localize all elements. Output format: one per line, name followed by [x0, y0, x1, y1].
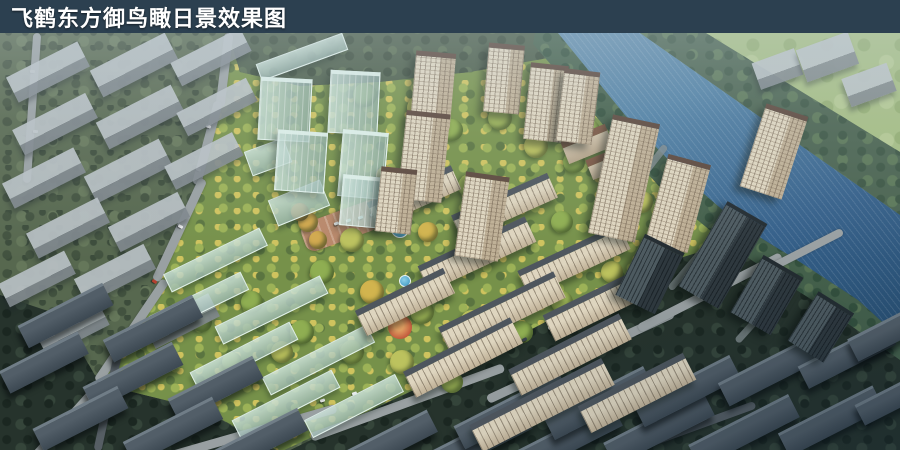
rendering-image: 飞鹤东方御鸟瞰日景效果图 — [0, 0, 900, 450]
atmospheric-haze — [0, 0, 900, 450]
title-banner: 飞鹤东方御鸟瞰日景效果图 — [0, 0, 900, 33]
page-title: 飞鹤东方御鸟瞰日景效果图 — [11, 1, 287, 33]
